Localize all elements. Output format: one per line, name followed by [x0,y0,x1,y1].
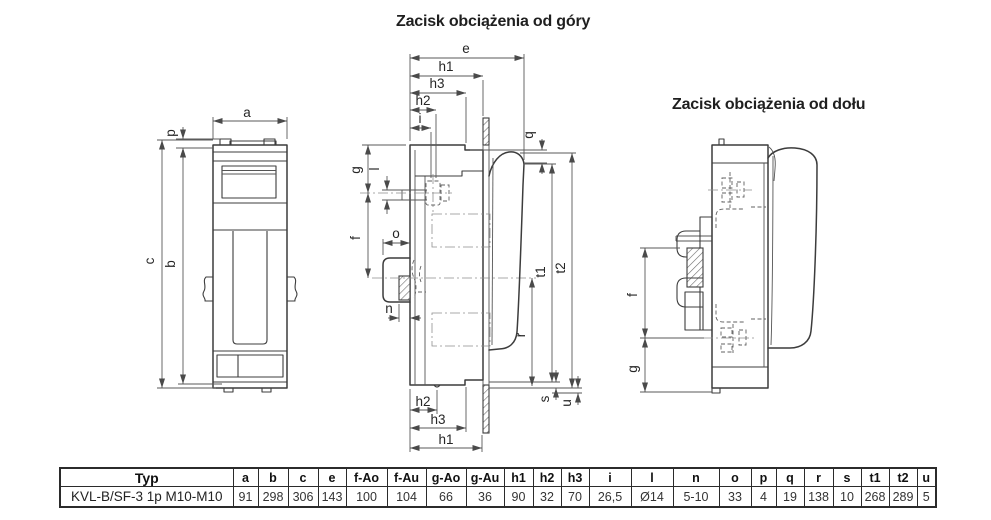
dim-h1-bottom: h1 [410,432,482,452]
dim-label-t1: t1 [533,266,548,277]
dim-label-e: e [462,41,470,56]
dim-label-r: r [513,332,528,337]
table-header: o [719,468,751,487]
table-header: g-Au [466,468,504,487]
table-cell: 298 [258,487,288,508]
table-header: n [673,468,719,487]
dim-o: o [383,226,410,255]
table-cell: 268 [861,487,889,508]
table-cell: 10 [833,487,861,508]
table-header: s [833,468,861,487]
dim-label-c: c [142,257,157,264]
table-header: b [258,468,288,487]
dim-g-right: g [625,338,712,392]
dim-h2-top: h2 [410,93,436,178]
table-cell: 70 [561,487,589,508]
dim-c: c [142,140,216,388]
table-header: g-Ao [426,468,466,487]
table-header: p [751,468,776,487]
table-header: u [917,468,936,487]
table-cell: 5 [917,487,936,508]
table-cell: 32 [533,487,561,508]
dim-t2: t2 [520,153,576,388]
dim-p: p [163,127,220,160]
table-cell: 289 [889,487,917,508]
table-cell: 5-10 [673,487,719,508]
dim-a: a [213,105,287,139]
table-cell: 33 [719,487,751,508]
dim-label-h2: h2 [415,93,430,108]
table-header: l [631,468,673,487]
table-header: h2 [533,468,561,487]
side-view-top-terminal-drawing: e h1 h3 h2 i [348,41,582,452]
dim-t1: t1 [524,164,556,382]
table-header: h3 [561,468,589,487]
table-header: i [589,468,631,487]
dim-label-h1: h1 [438,59,453,74]
dim-label-g: g [348,166,363,174]
front-view-drawing: a p c b [142,105,297,392]
dim-label-f: f [348,236,363,240]
table-header: e [318,468,346,487]
table-header-row: Typ a b c e f-Ao f-Au g-Ao g-Au h1 h2 h3… [60,468,936,487]
dim-label-n: n [385,301,393,316]
table-cell: 143 [318,487,346,508]
dim-h2-bottom: h2 [410,390,437,414]
dim-label-a: a [243,105,251,120]
table-header: h1 [504,468,533,487]
dim-label-t2: t2 [553,262,568,273]
dim-u: u [559,376,578,407]
dim-h3-top: h3 [410,76,466,143]
dim-l: l [367,168,402,215]
dim-label-h2b: h2 [415,394,430,409]
table-cell: 100 [346,487,387,508]
table-cell: 36 [466,487,504,508]
table-cell: 4 [751,487,776,508]
dim-label-s: s [537,395,552,402]
table-cell: 91 [233,487,258,508]
table-cell: 26,5 [589,487,631,508]
table-cell: 90 [504,487,533,508]
table-header: a [233,468,258,487]
table-header-typ: Typ [60,468,233,487]
dim-label-o: o [392,226,400,241]
dim-n: n [385,301,421,322]
table-cell-type: KVL-B/SF-3 1p M10-M10 [60,487,233,508]
dim-s: s [537,370,556,402]
dim-label-i: i [419,111,422,126]
dim-label-q: q [521,131,536,139]
dim-label-b: b [163,260,178,268]
table-cell: 138 [804,487,833,508]
table-header: f-Au [387,468,426,487]
table-header: f-Ao [346,468,387,487]
table-cell: Ø14 [631,487,673,508]
table-cell: 19 [776,487,804,508]
dimension-table: Typ a b c e f-Ao f-Au g-Ao g-Au h1 h2 h3… [59,467,937,508]
side-view-bottom-terminal-drawing: f g [625,139,817,393]
table-cell: 104 [387,487,426,508]
dim-label-h1b: h1 [438,432,453,447]
dimension-drawing-svg: a p c b [0,0,991,462]
table-cell: 306 [288,487,318,508]
table-header: r [804,468,833,487]
dim-label-h3b: h3 [430,412,445,427]
table-header: t1 [861,468,889,487]
table-header: q [776,468,804,487]
dim-r: r [513,278,532,386]
technical-drawing-page: Zacisk obciążenia od góry Zacisk obciąże… [0,0,991,520]
dim-f-top: f [348,193,368,278]
dim-label-g2: g [625,365,640,373]
table-header: c [288,468,318,487]
table-row: KVL-B/SF-3 1p M10-M10 91 298 306 143 100… [60,487,936,508]
table-header: t2 [889,468,917,487]
dim-label-f2: f [625,293,640,297]
table-cell: 66 [426,487,466,508]
dim-label-h3: h3 [429,76,444,91]
dim-label-u: u [559,399,574,407]
dim-label-p: p [163,129,178,137]
dim-label-l: l [367,168,382,171]
